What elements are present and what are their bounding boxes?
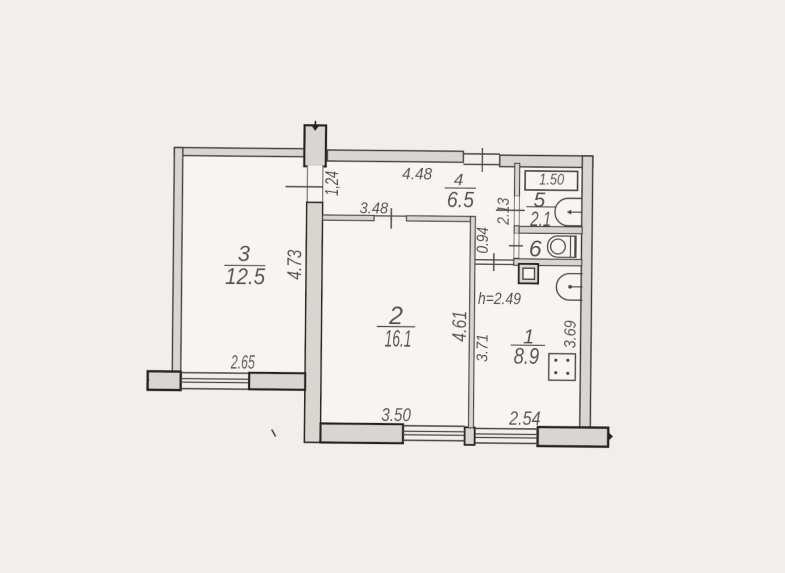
svg-text:3.71: 3.71 — [474, 334, 491, 362]
svg-text:6.5: 6.5 — [447, 187, 475, 212]
svg-text:8.9: 8.9 — [514, 343, 540, 369]
svg-text:1.50: 1.50 — [539, 172, 564, 189]
svg-text:16.1: 16.1 — [384, 325, 411, 352]
svg-text:4.48: 4.48 — [402, 165, 433, 183]
svg-text:h=2.49: h=2.49 — [478, 290, 521, 308]
svg-text:2.65: 2.65 — [230, 353, 255, 374]
svg-text:4.61: 4.61 — [449, 311, 471, 342]
svg-text:1,24: 1,24 — [322, 171, 342, 196]
svg-text:3.69: 3.69 — [560, 320, 579, 349]
svg-text:3.50: 3.50 — [381, 405, 411, 425]
svg-text:3.48: 3.48 — [359, 200, 388, 217]
svg-text:2.13: 2.13 — [494, 197, 513, 225]
svg-text:4.73: 4.73 — [284, 250, 306, 280]
svg-text:12.5: 12.5 — [225, 263, 266, 289]
svg-text:0.94: 0.94 — [473, 227, 492, 254]
svg-text:2.54: 2.54 — [508, 409, 541, 430]
svg-text:6: 6 — [529, 235, 542, 261]
svg-text:2.1: 2.1 — [529, 208, 551, 231]
